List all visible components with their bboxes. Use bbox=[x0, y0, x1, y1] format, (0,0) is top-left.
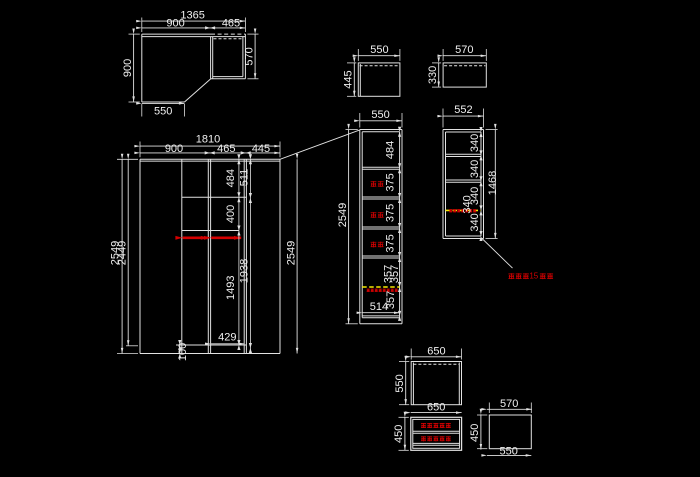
svg-text:650: 650 bbox=[427, 401, 445, 413]
svg-text:570: 570 bbox=[500, 398, 518, 410]
svg-text:340: 340 bbox=[462, 195, 474, 213]
svg-text:340: 340 bbox=[469, 134, 481, 152]
svg-text:429: 429 bbox=[218, 332, 236, 344]
svg-text:552: 552 bbox=[454, 104, 472, 116]
svg-text:900: 900 bbox=[166, 18, 184, 30]
svg-text:570: 570 bbox=[244, 47, 256, 65]
svg-text:375: 375 bbox=[384, 234, 396, 252]
svg-text:340: 340 bbox=[469, 213, 481, 231]
svg-text:400: 400 bbox=[225, 205, 237, 223]
svg-text:900: 900 bbox=[165, 143, 183, 155]
svg-text:340: 340 bbox=[469, 160, 481, 178]
svg-text:570: 570 bbox=[455, 44, 473, 56]
svg-text:2449: 2449 bbox=[117, 241, 129, 265]
svg-text:2549: 2549 bbox=[285, 241, 297, 265]
svg-text:445: 445 bbox=[342, 70, 354, 88]
svg-text:900: 900 bbox=[122, 59, 134, 77]
svg-text:484: 484 bbox=[384, 141, 396, 159]
svg-text:511: 511 bbox=[238, 169, 250, 187]
svg-text:357: 357 bbox=[385, 291, 397, 309]
svg-text:357: 357 bbox=[389, 265, 401, 283]
svg-text:100: 100 bbox=[177, 343, 189, 361]
svg-text:450: 450 bbox=[393, 425, 405, 443]
svg-text:330: 330 bbox=[427, 66, 439, 84]
svg-text:550: 550 bbox=[370, 44, 388, 56]
svg-text:2549: 2549 bbox=[337, 203, 349, 227]
svg-text:484: 484 bbox=[225, 169, 237, 187]
svg-text:445: 445 bbox=[252, 143, 270, 155]
svg-text:1493: 1493 bbox=[225, 276, 237, 300]
svg-text:550: 550 bbox=[154, 105, 172, 117]
svg-text:550: 550 bbox=[394, 374, 406, 392]
svg-text:1938: 1938 bbox=[238, 259, 250, 283]
svg-text:465: 465 bbox=[222, 18, 240, 30]
svg-text:15: 15 bbox=[529, 272, 538, 281]
svg-text:375: 375 bbox=[384, 204, 396, 222]
svg-text:650: 650 bbox=[427, 345, 445, 357]
svg-text:1468: 1468 bbox=[487, 171, 499, 195]
svg-text:450: 450 bbox=[469, 424, 481, 442]
svg-text:550: 550 bbox=[500, 445, 518, 457]
svg-text:375: 375 bbox=[384, 173, 396, 191]
svg-text:550: 550 bbox=[371, 109, 389, 121]
svg-text:465: 465 bbox=[217, 143, 235, 155]
